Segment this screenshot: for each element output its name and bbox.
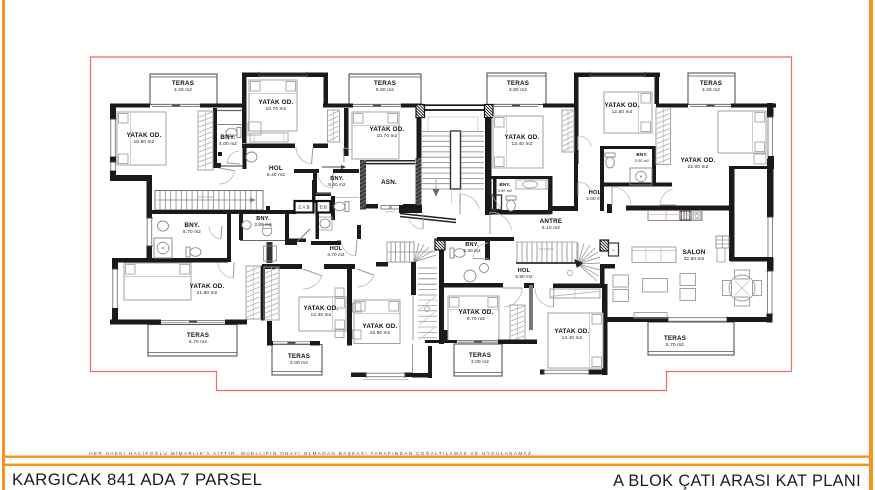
svg-text:BNY.: BNY.: [184, 222, 199, 229]
svg-text:YATAK OD.: YATAK OD.: [304, 305, 339, 312]
svg-text:A BLOK ÇATI ARASI KAT PLANI: A BLOK ÇATI ARASI KAT PLANI: [613, 472, 861, 490]
svg-text:16.90 m2: 16.90 m2: [134, 139, 155, 144]
svg-text:h: h: [613, 249, 615, 253]
svg-text:YATAK OD.: YATAK OD.: [127, 132, 162, 139]
svg-text:8.40 m2: 8.40 m2: [267, 172, 285, 177]
svg-text:3.60 m2: 3.60 m2: [498, 189, 512, 193]
svg-text:5.40 m2: 5.40 m2: [328, 182, 346, 187]
svg-text:ASN.: ASN.: [381, 179, 397, 186]
svg-text:YATAK OD.: YATAK OD.: [681, 157, 716, 164]
svg-text:SALON: SALON: [682, 249, 705, 256]
svg-text:22.00 m2: 22.00 m2: [688, 164, 709, 169]
svg-text:YATAK OD.: YATAK OD.: [363, 323, 398, 330]
svg-text:YATAK OD.: YATAK OD.: [459, 309, 494, 316]
svg-text:5.70 m2: 5.70 m2: [666, 342, 684, 347]
svg-text:5.70 m2: 5.70 m2: [183, 229, 201, 234]
svg-text:5.70 m2: 5.70 m2: [189, 339, 207, 344]
svg-text:TERAS: TERAS: [172, 80, 194, 87]
svg-text:YATAK OD.: YATAK OD.: [605, 102, 640, 109]
svg-text:5.90 m2: 5.90 m2: [515, 274, 533, 279]
svg-text:15x17,5/28: 15x17,5/28: [539, 247, 554, 251]
svg-text:YATAK OD.: YATAK OD.: [259, 99, 294, 106]
svg-text:4.00 m2: 4.00 m2: [219, 141, 237, 146]
svg-text:KARGICAK 841 ADA 7 PARSEL: KARGICAK 841 ADA 7 PARSEL: [12, 470, 262, 489]
svg-text:3.00 m2: 3.00 m2: [471, 359, 489, 364]
svg-text:BNY.: BNY.: [636, 152, 647, 157]
svg-text:YATAK OD.: YATAK OD.: [505, 134, 540, 141]
svg-text:32.50 m2: 32.50 m2: [684, 256, 705, 261]
svg-text:13.40 m2: 13.40 m2: [512, 141, 533, 146]
svg-text:3.00 m2: 3.00 m2: [635, 159, 649, 163]
svg-text:3.00 m2: 3.00 m2: [290, 360, 308, 365]
svg-text:TERAS: TERAS: [469, 352, 491, 359]
svg-text:TERAS: TERAS: [187, 332, 209, 339]
svg-text:5.00 m2: 5.00 m2: [376, 87, 394, 92]
svg-text:15x17,5/28: 15x17,5/28: [198, 195, 213, 199]
svg-text:4.70 m2: 4.70 m2: [327, 252, 345, 257]
svg-text:3.80 m2: 3.80 m2: [254, 222, 272, 227]
svg-text:TERAS: TERAS: [700, 80, 722, 87]
svg-text:3.40 m2: 3.40 m2: [174, 87, 192, 92]
svg-text:Z.A.B: Z.A.B: [298, 205, 309, 210]
svg-text:13.40 m2: 13.40 m2: [562, 335, 583, 340]
svg-text:21.80 m2: 21.80 m2: [197, 290, 218, 295]
svg-text:HOL: HOL: [269, 165, 283, 172]
svg-text:3.40 m2: 3.40 m2: [702, 87, 720, 92]
svg-text:3.90 m2: 3.90 m2: [509, 87, 527, 92]
svg-text:TERAS: TERAS: [374, 80, 396, 87]
svg-text:YATAK OD.: YATAK OD.: [555, 328, 590, 335]
svg-text:6.10 m2: 6.10 m2: [542, 225, 560, 230]
svg-text:12.40 m2: 12.40 m2: [311, 312, 332, 317]
svg-text:E.B: E.B: [320, 205, 327, 210]
svg-text:YATAK OD.: YATAK OD.: [190, 283, 225, 290]
svg-text:TERAS: TERAS: [288, 353, 310, 360]
svg-text:TERAS: TERAS: [664, 335, 686, 342]
svg-text:BNY.: BNY.: [499, 182, 510, 187]
svg-text:HER HAKKI HACİFOĞLU MİMARLI: HER HAKKI HACİFOĞLU MİMARLIK'A AİTTİR. M…: [89, 450, 535, 456]
svg-text:12.50 m2: 12.50 m2: [612, 109, 633, 114]
svg-text:10.70 m2: 10.70 m2: [266, 106, 287, 111]
svg-text:2.00 m2: 2.00 m2: [586, 196, 604, 201]
svg-text:9.70 m2: 9.70 m2: [467, 316, 485, 321]
svg-text:BNY.: BNY.: [220, 134, 235, 141]
svg-text:asansör: asansör: [385, 210, 394, 214]
svg-text:TERAS: TERAS: [507, 80, 529, 87]
svg-text:3.40 m2: 3.40 m2: [463, 248, 481, 253]
svg-text:10.70 m2: 10.70 m2: [377, 133, 398, 138]
svg-text:YATAK OD.: YATAK OD.: [370, 126, 405, 133]
svg-text:ANTRE: ANTRE: [540, 218, 563, 225]
svg-text:16.90 m2: 16.90 m2: [370, 330, 391, 335]
